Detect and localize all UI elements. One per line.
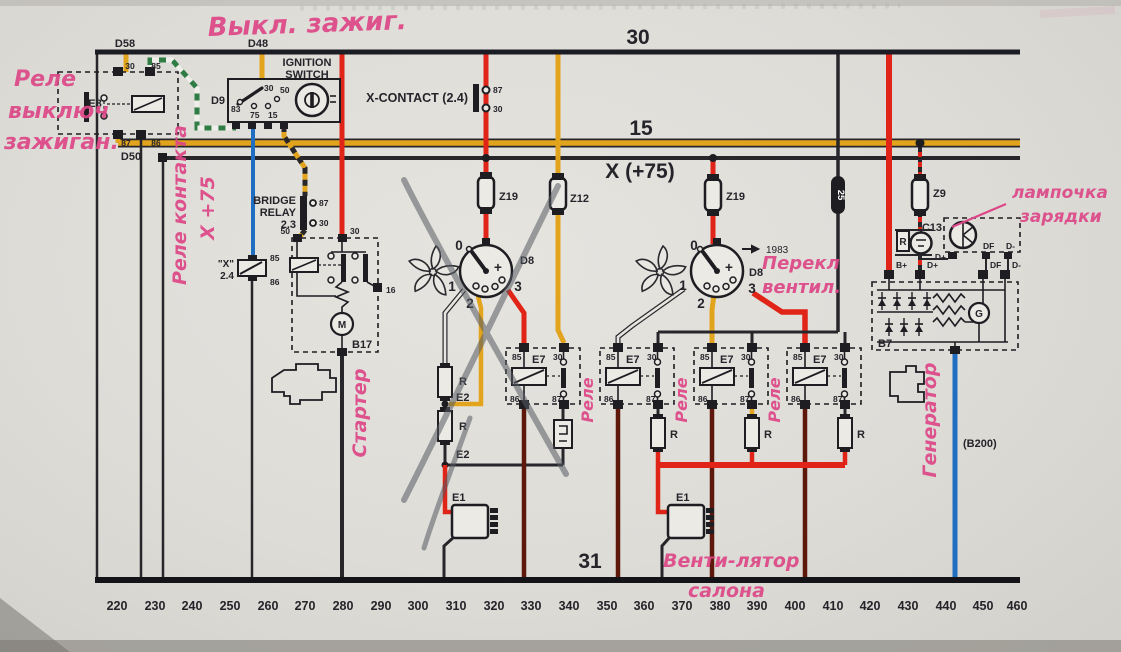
ruler-scale: 220230 240250 260270 280290 300310 32033… xyxy=(107,599,1028,613)
svg-text:230: 230 xyxy=(145,599,166,613)
bridge-t87: 87 xyxy=(319,198,329,208)
b7-g-label: G xyxy=(975,309,983,320)
resistor-r-e2-1 xyxy=(438,363,452,401)
starter-motor-outline xyxy=(272,364,336,404)
wires xyxy=(118,52,1008,580)
e8-t85: 85 xyxy=(151,61,161,71)
note-fan-switch-1: Перекл xyxy=(762,253,840,274)
fan-switch-d8-left xyxy=(460,238,512,297)
resistor-r-1 xyxy=(651,414,665,452)
svg-text:E7: E7 xyxy=(720,354,733,366)
note-relay-ign-2: выключ xyxy=(8,99,109,124)
svg-text:460: 460 xyxy=(1007,599,1028,613)
note-relay-ign-1: Реле xyxy=(14,67,76,92)
b200-label: (B200) xyxy=(963,438,997,450)
note-relay-1: Реле xyxy=(578,377,597,422)
x24-label-2: 2.4 xyxy=(220,271,234,282)
c13-dminus: D- xyxy=(1006,241,1015,251)
svg-text:300: 300 xyxy=(408,599,429,613)
b17-t30: 30 xyxy=(350,226,360,236)
x24-t85: 85 xyxy=(270,253,280,263)
svg-text:E7: E7 xyxy=(626,354,639,366)
d9-t30: 30 xyxy=(264,83,274,93)
resistor-r-3 xyxy=(838,414,852,452)
r-label-3: R xyxy=(670,429,678,441)
fuse-z19-right xyxy=(705,174,721,216)
b17-t50: 50 xyxy=(281,226,291,236)
ignition-switch-title-1: IGNITION xyxy=(283,57,332,69)
fuse-z9 xyxy=(912,174,928,216)
connector-d58: D58 xyxy=(115,38,135,50)
charge-lamp-pointer-line xyxy=(952,204,1006,227)
svg-text:320: 320 xyxy=(484,599,505,613)
svg-text:360: 360 xyxy=(634,599,655,613)
svg-text:270: 270 xyxy=(295,599,316,613)
b7-dplus: D+ xyxy=(927,260,938,270)
svg-text:220: 220 xyxy=(107,599,128,613)
svg-text:85: 85 xyxy=(512,352,522,362)
svg-text:330: 330 xyxy=(521,599,542,613)
handwritten-annotations: Выкл. зажиг. Реле выключ зажиган. Реле к… xyxy=(3,6,1108,602)
note-contact-relay-2: X +75 xyxy=(197,176,219,241)
c13-df: DF xyxy=(983,241,994,251)
fan-switch-d8-right xyxy=(691,238,743,297)
e8-t30: 30 xyxy=(125,61,135,71)
d8l-pos3: 3 xyxy=(514,279,522,294)
fuse-z9-label: Z9 xyxy=(933,188,946,200)
note-relay-2: Реле xyxy=(672,377,691,422)
b7-dminus: D- xyxy=(1012,260,1021,270)
d8r-pos0: 0 xyxy=(690,238,698,253)
fuse-z12-label: Z12 xyxy=(570,193,589,205)
blower-motor-right xyxy=(668,505,714,538)
svg-text:400: 400 xyxy=(785,599,806,613)
svg-text:240: 240 xyxy=(182,599,203,613)
note-charge-lamp-1: лампочка xyxy=(1012,183,1108,203)
svg-text:350: 350 xyxy=(597,599,618,613)
note-generator: Генератор xyxy=(919,362,941,477)
svg-text:250: 250 xyxy=(220,599,241,613)
bus-31-label: 31 xyxy=(578,550,602,573)
d9-t50: 50 xyxy=(280,85,290,95)
x-contact-t30: 30 xyxy=(493,104,503,114)
d8l-pos0: 0 xyxy=(455,238,463,253)
svg-text:86: 86 xyxy=(791,394,801,404)
svg-text:30: 30 xyxy=(647,352,657,362)
note-charge-lamp-2: зарядки xyxy=(1019,207,1102,227)
note-cabin-fan-1: Венти-лятор xyxy=(663,550,800,572)
ignition-switch-title-2: SWITCH xyxy=(285,69,328,81)
c13-label: C13 xyxy=(922,222,942,234)
wiring-diagram-photo: 30 15 X (+75) 31 D58 D48 D50 E8 30 85 87… xyxy=(0,0,1121,652)
svg-text:310: 310 xyxy=(446,599,467,613)
bridge-t30: 30 xyxy=(319,218,329,228)
fuse-z19-left xyxy=(478,172,494,214)
svg-text:450: 450 xyxy=(973,599,994,613)
svg-text:340: 340 xyxy=(559,599,580,613)
svg-text:86: 86 xyxy=(698,394,708,404)
starter-relay-b17 xyxy=(290,234,382,356)
note-relay-ign-3: зажиган. xyxy=(3,130,119,155)
bus-x75-label: X (+75) xyxy=(605,160,674,183)
switch-d9-label: D9 xyxy=(211,95,225,107)
fuse-z19-left-label: Z19 xyxy=(499,191,518,203)
b7-bplus: B+ xyxy=(896,260,907,270)
thermal-switch xyxy=(554,420,572,448)
x-contact-label: X-CONTACT (2.4) xyxy=(366,91,468,105)
arrow-1983 xyxy=(742,246,758,252)
blower-right-label: E1 xyxy=(676,492,689,504)
svg-text:87: 87 xyxy=(552,394,562,404)
svg-text:E7: E7 xyxy=(532,354,545,366)
svg-text:87: 87 xyxy=(833,394,843,404)
b7-df: DF xyxy=(990,260,1001,270)
fuse-25-label: 25 xyxy=(835,190,846,201)
note-starter: Стартер xyxy=(349,369,371,458)
resistor-r-2 xyxy=(745,414,759,452)
d9-t83: 83 xyxy=(231,104,241,114)
x24-label-1: "X" xyxy=(218,259,234,270)
b7-label: B7 xyxy=(878,338,892,350)
svg-text:E7: E7 xyxy=(813,354,826,366)
svg-text:410: 410 xyxy=(823,599,844,613)
relay-x24 xyxy=(238,255,266,281)
svg-text:290: 290 xyxy=(371,599,392,613)
d8r-pos2: 2 xyxy=(697,296,705,311)
svg-text:440: 440 xyxy=(936,599,957,613)
svg-text:260: 260 xyxy=(258,599,279,613)
bridge-relay-fuse xyxy=(300,196,316,230)
bus-15-label: 15 xyxy=(629,117,653,140)
d8r-plus: + xyxy=(725,260,733,275)
svg-text:85: 85 xyxy=(606,352,616,362)
e8-t87: 87 xyxy=(121,138,131,148)
generator-b7 xyxy=(872,270,1018,354)
svg-text:86: 86 xyxy=(604,394,614,404)
b17-motor-m: M xyxy=(338,320,346,331)
bridge-relay-label-1: BRIDGE xyxy=(253,195,296,207)
svg-text:30: 30 xyxy=(741,352,751,362)
svg-text:280: 280 xyxy=(333,599,354,613)
r-label-4: R xyxy=(764,429,772,441)
x24-t86: 86 xyxy=(270,277,280,287)
blower-left-label: E1 xyxy=(452,492,465,504)
d8r-pos1: 1 xyxy=(679,278,687,293)
e8-t86: 86 xyxy=(151,138,161,148)
wiring-diagram: 30 15 X (+75) 31 D58 D48 D50 E8 30 85 87… xyxy=(0,0,1121,652)
note-cabin-fan-2: салона xyxy=(688,580,765,602)
c13-r-label: R xyxy=(899,237,907,248)
d9-t15: 15 xyxy=(268,110,278,120)
svg-text:430: 430 xyxy=(898,599,919,613)
svg-text:87: 87 xyxy=(646,394,656,404)
svg-text:30: 30 xyxy=(553,352,563,362)
svg-text:30: 30 xyxy=(834,352,844,362)
svg-text:87: 87 xyxy=(740,394,750,404)
note-fan-switch-2: вентил. xyxy=(762,277,841,298)
svg-text:86: 86 xyxy=(510,394,520,404)
bridge-relay-label-2: RELAY xyxy=(260,207,297,219)
note-contact-relay-1: Реле контакта xyxy=(169,125,191,285)
svg-text:85: 85 xyxy=(700,352,710,362)
d9-t75: 75 xyxy=(250,110,260,120)
connector-d50: D50 xyxy=(121,151,141,163)
svg-text:420: 420 xyxy=(860,599,881,613)
fuse-z19-right-label: Z19 xyxy=(726,191,745,203)
blower-motor-left xyxy=(452,505,498,538)
svg-text:85: 85 xyxy=(793,352,803,362)
b17-t16: 16 xyxy=(386,285,396,295)
d8r-label: D8 xyxy=(749,267,763,279)
bus-30-label: 30 xyxy=(626,26,649,49)
d8l-plus: + xyxy=(494,260,502,275)
x-contact-t87: 87 xyxy=(493,85,503,95)
d8r-pos3: 3 xyxy=(748,281,756,296)
note-ignition-off: Выкл. зажиг. xyxy=(207,6,407,43)
r-label-5: R xyxy=(857,429,865,441)
b17-label: B17 xyxy=(352,339,372,351)
note-relay-3: Реле xyxy=(765,377,784,422)
